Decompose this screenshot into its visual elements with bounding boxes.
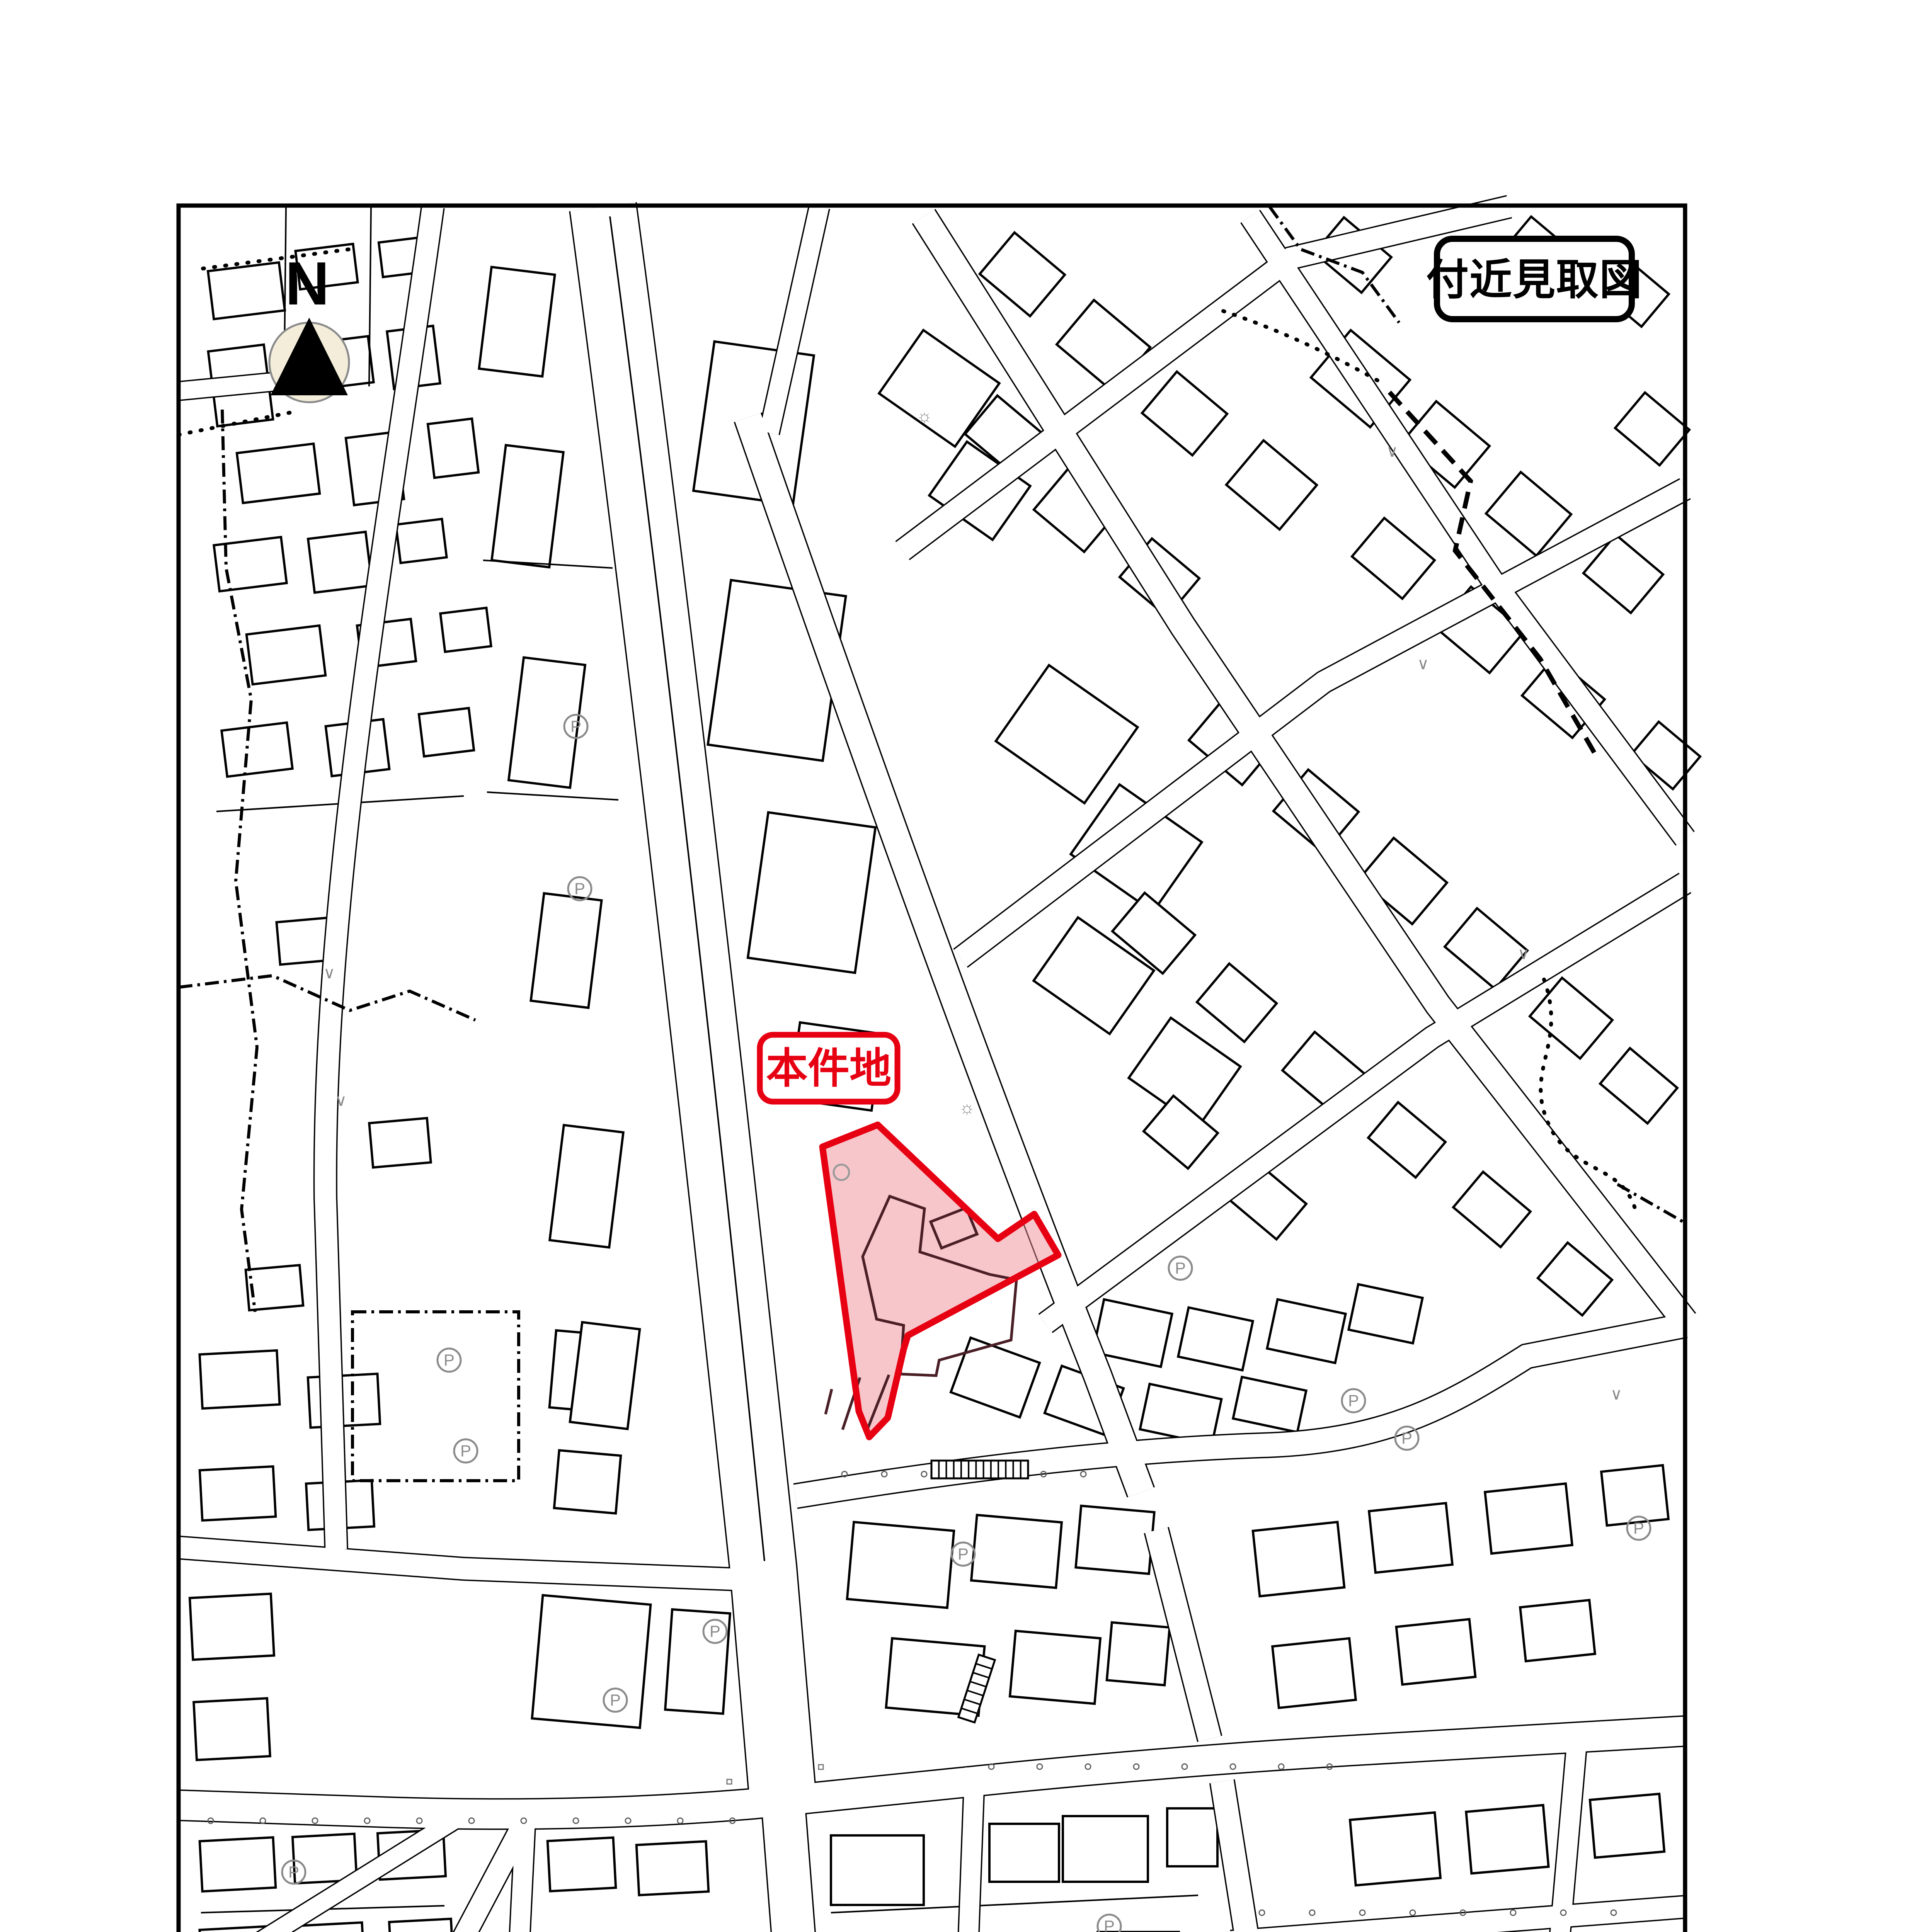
building [208, 262, 285, 319]
building [532, 1595, 651, 1728]
building [389, 1919, 453, 1932]
building [1272, 1638, 1356, 1708]
parking-icon-letter: P [610, 1691, 621, 1709]
building [550, 1125, 623, 1248]
building [1466, 1805, 1548, 1874]
stairs-icon [931, 1461, 1028, 1478]
building [1520, 1600, 1595, 1661]
site-label: 本件地 [766, 1045, 891, 1092]
building [237, 444, 320, 503]
building [221, 723, 292, 777]
building [492, 445, 563, 567]
building [570, 1322, 640, 1429]
vicinity-map-page: PPPPPPPPPPPPPP∨∨∨∨∨∨☼☼ N 付近見取図 本件地 縮尺 1：… [0, 0, 1917, 1932]
building [637, 1841, 709, 1895]
building [1485, 1483, 1572, 1553]
building [194, 1698, 270, 1760]
map-canvas: PPPPPPPPPPPPPP∨∨∨∨∨∨☼☼ N 付近見取図 本件地 縮尺 1：… [0, 0, 1917, 1932]
parking-icon-letter: P [460, 1442, 471, 1460]
building [1063, 1816, 1148, 1882]
building [548, 1838, 616, 1891]
building [369, 1118, 431, 1168]
building [396, 519, 446, 563]
building [989, 1824, 1059, 1882]
building [831, 1835, 924, 1905]
building [1396, 1619, 1476, 1684]
building [200, 1837, 276, 1891]
building [428, 419, 478, 478]
tree-icon: ∨ [1611, 1385, 1622, 1403]
parking-icon-letter: P [444, 1351, 455, 1369]
building [1369, 1503, 1452, 1573]
map-title: 付近見取図 [1426, 256, 1643, 304]
parking-icon-letter: P [1348, 1391, 1359, 1410]
site-label-box: 本件地 [760, 1035, 897, 1102]
building [308, 532, 372, 592]
building [531, 893, 601, 1008]
building [419, 708, 474, 756]
tree-icon: ∨ [1386, 442, 1398, 460]
building [1253, 1522, 1345, 1596]
parking-icon-letter: P [288, 1863, 299, 1881]
landmark-icon: ☼ [916, 406, 933, 426]
building [1590, 1794, 1664, 1857]
parking-icon-letter: P [1401, 1429, 1412, 1447]
tree-icon: ∨ [323, 964, 335, 982]
building [200, 1466, 276, 1520]
parking-icon-letter: P [958, 1545, 969, 1563]
parking-icon-letter: P [1175, 1259, 1186, 1277]
building [1107, 1622, 1170, 1685]
map-title-box: 付近見取図 [1426, 239, 1643, 319]
building [440, 608, 491, 652]
building [554, 1450, 621, 1513]
building [1076, 1506, 1154, 1574]
landmark-icon: ☼ [959, 1097, 975, 1117]
parking-icon-letter: P [1633, 1519, 1644, 1537]
parking-icon-letter: P [570, 717, 581, 735]
building [199, 1350, 279, 1408]
building [1350, 1813, 1440, 1886]
tree-icon: ∨ [1518, 944, 1530, 963]
building [1167, 1808, 1217, 1866]
building [479, 267, 555, 376]
building [1010, 1631, 1100, 1704]
north-label: N [285, 250, 329, 318]
building [247, 626, 325, 684]
building [190, 1594, 274, 1660]
parking-icon-letter: P [574, 879, 585, 898]
building [748, 812, 875, 973]
building [847, 1522, 954, 1608]
tree-icon: ∨ [335, 1091, 347, 1109]
building [971, 1515, 1062, 1588]
parking-icon-letter: P [1104, 1917, 1115, 1932]
parking-icon-letter: P [710, 1622, 720, 1640]
tree-icon: ∨ [1417, 655, 1429, 673]
